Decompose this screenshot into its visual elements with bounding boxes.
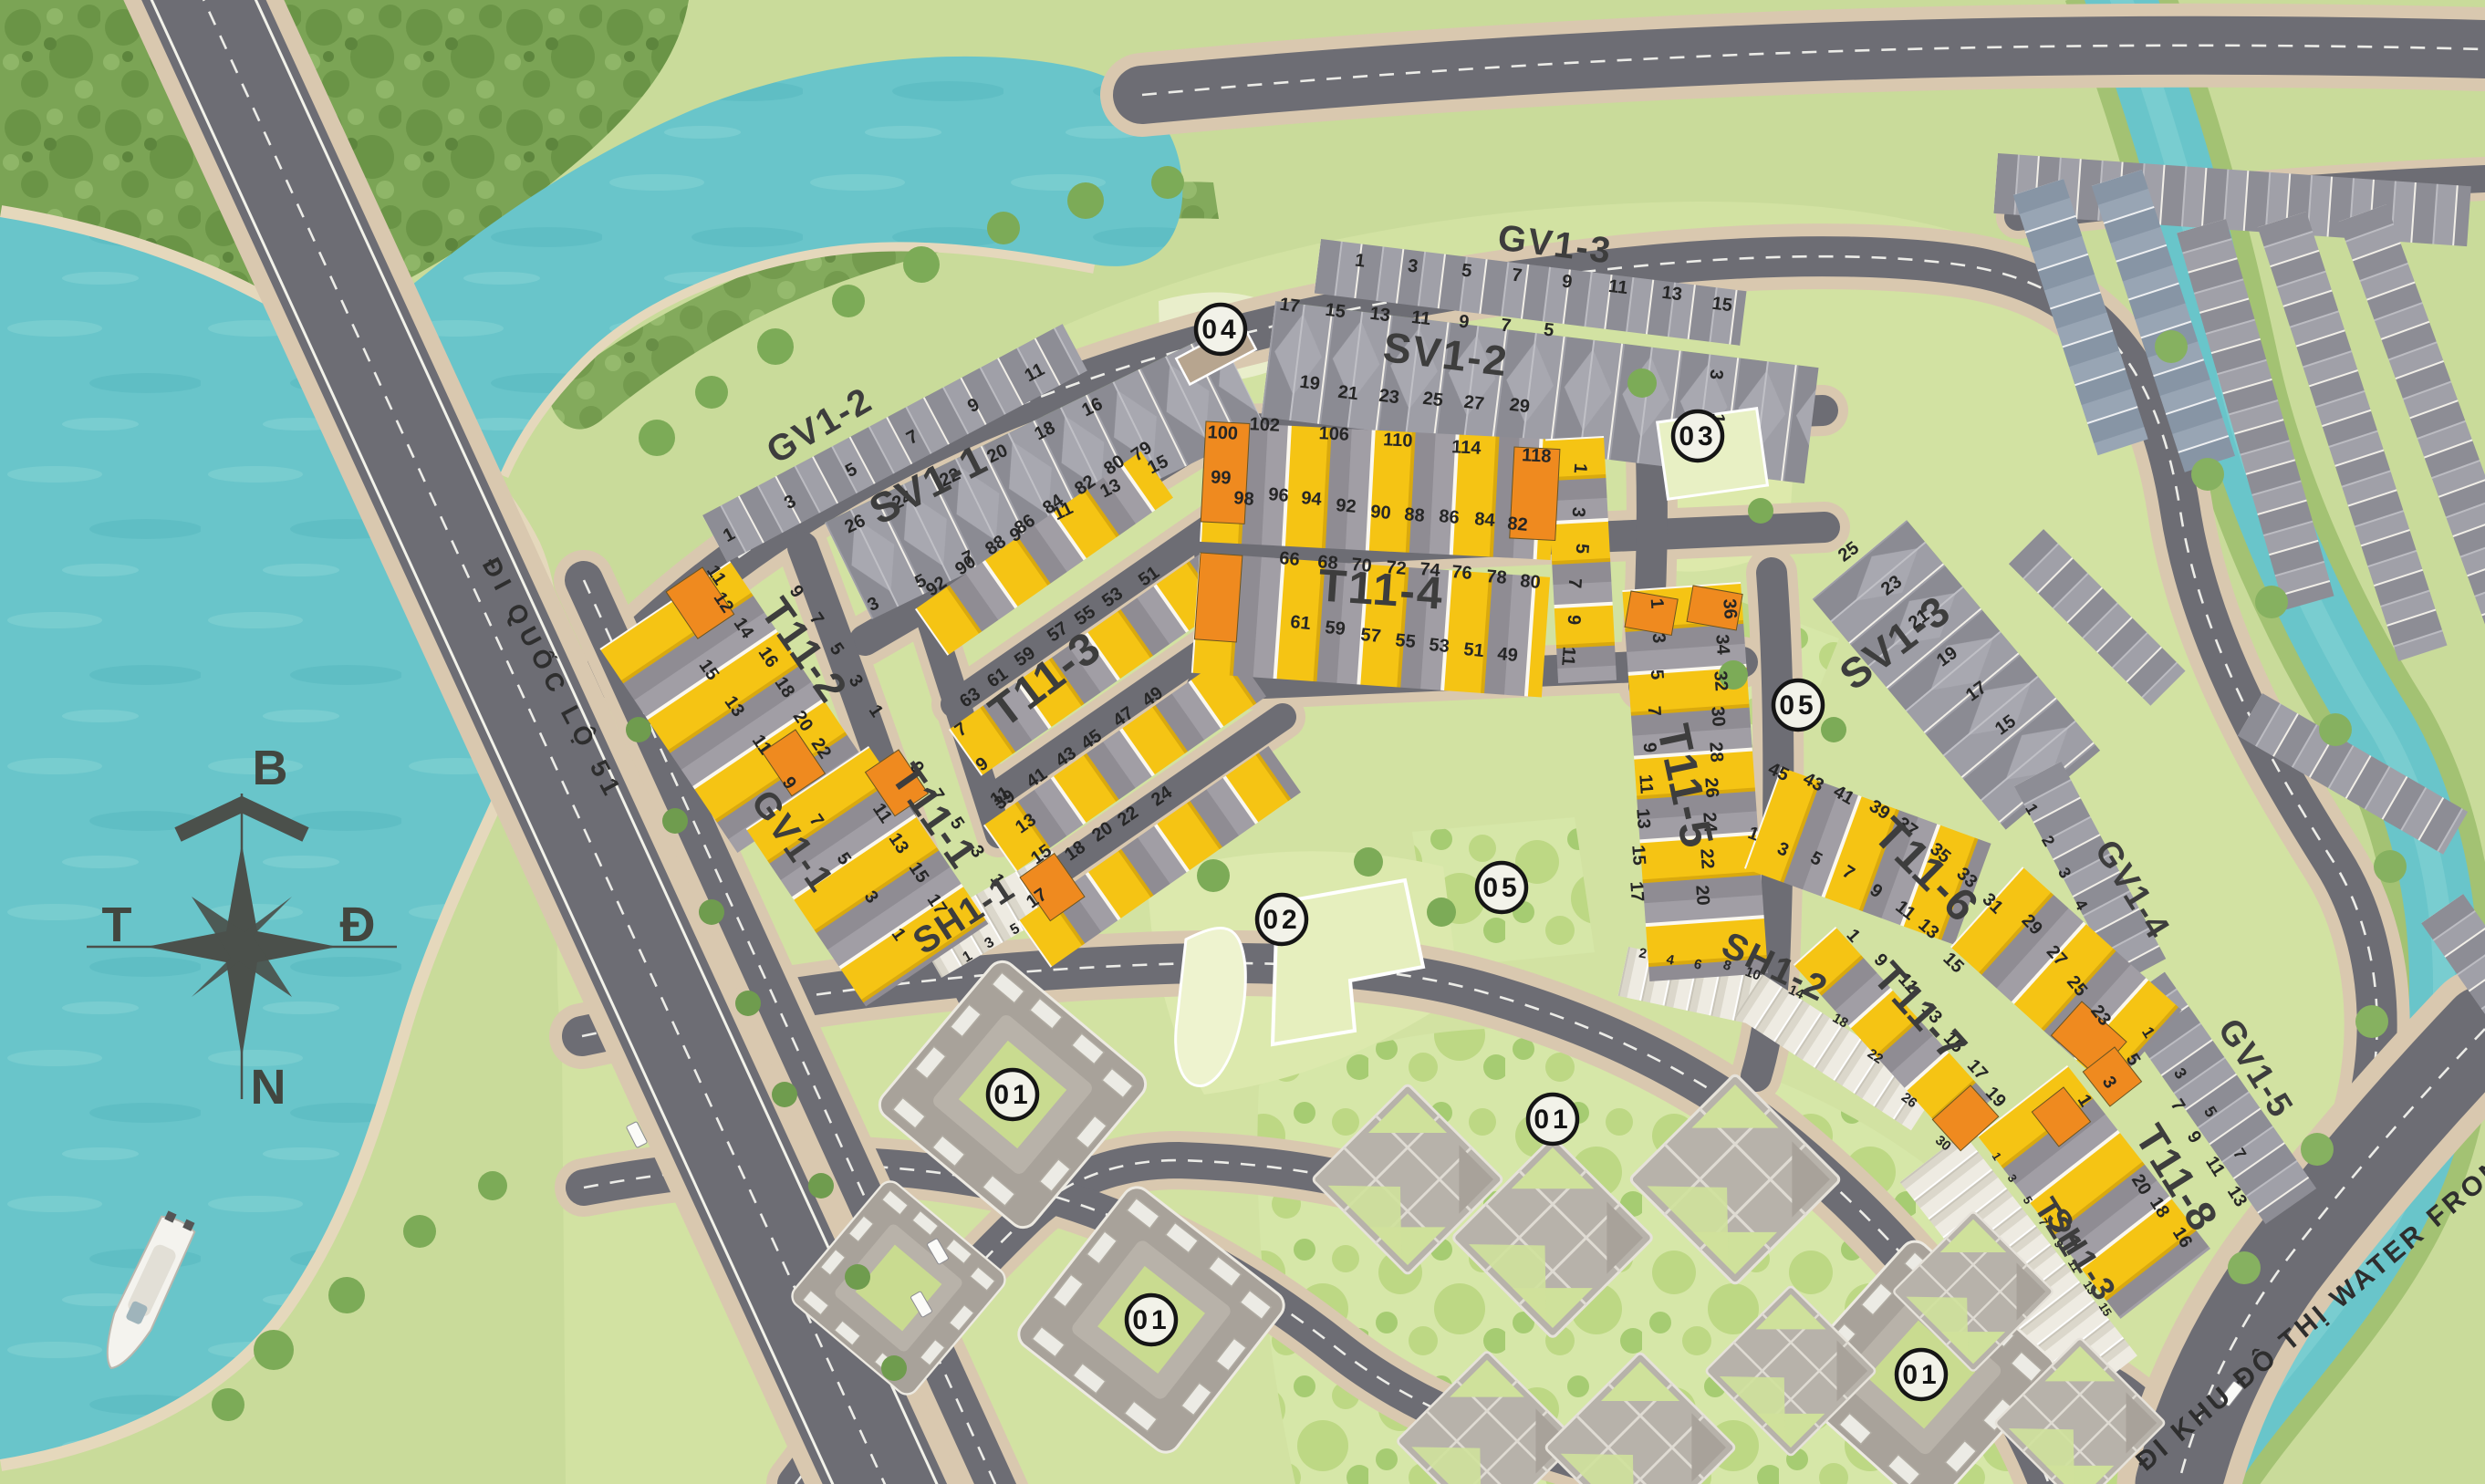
lot-number: 98 [1232,488,1254,510]
lot-number: 57 [1359,625,1381,647]
lot-number: 53 [1428,635,1450,657]
lot-number: 34 [1711,634,1733,657]
lot-number: 49 [1496,644,1518,666]
lot-number: 84 [1473,509,1496,531]
lot-number: 3 [1568,506,1589,518]
lot-number: 82 [1506,514,1528,535]
lot-number: 17 [1626,881,1647,903]
lot-number: 7 [1644,705,1665,717]
lot-number: 59 [1324,617,1346,639]
lot-number: 28 [1705,742,1726,763]
lot-number: 20 [1691,885,1712,907]
lot-number: 3 [1648,632,1669,644]
zone-marker-01[interactable]: 01 [988,1070,1037,1119]
lot-number: 80 [1519,571,1541,593]
lot-number: 15 [1710,294,1733,317]
lot-number: 22 [1696,848,1717,870]
compass-west-label: T [102,898,132,952]
zone-marker-03[interactable]: 03 [1673,411,1722,461]
lot-number: 11 [1607,276,1629,298]
marker-number: 05 [1482,873,1520,903]
lot-number: 76 [1450,562,1472,584]
lot-number: 27 [1462,392,1485,415]
marker-number: 04 [1201,315,1239,345]
lot-number: 11 [1635,773,1656,794]
lot-number: 90 [1369,502,1391,524]
lot-number: 13 [1632,808,1653,830]
compass-north-label: B [253,741,288,795]
compass-south-label: N [251,1060,286,1115]
marker-number: 03 [1679,421,1716,451]
lot-number: 1 [1647,597,1668,609]
lot-number: 21 [1336,382,1359,405]
lot-number: 29 [1508,395,1531,418]
lot-number: 25 [1421,389,1444,411]
lot-number: 118 [1522,445,1552,467]
lot-number: 92 [1335,495,1357,517]
lot-number: 86 [1438,506,1460,528]
lot-number: 5 [1647,669,1668,680]
lot-number: 99 [1211,467,1232,488]
zone-label-t11-4: T11-4 [1316,559,1445,618]
lot-number: 78 [1485,566,1507,588]
lot-number: 17 [1278,295,1301,317]
masterplan-map: B T Đ N ĐI QUỐC LỘ 51 ĐI KHU ĐÔ THỊ WATE… [0,0,2485,1484]
lot-number: 94 [1300,488,1323,510]
lot-number: 3 [1706,368,1727,380]
lot-number: 32 [1710,670,1731,692]
marker-number: 05 [1779,690,1816,721]
zone-marker-02[interactable]: 02 [1257,895,1306,944]
lot-number: 106 [1318,423,1349,445]
zone-marker-05[interactable]: 05 [1477,863,1526,912]
marker-number: 01 [1132,1305,1170,1335]
marker-number: 01 [1902,1360,1939,1390]
masterplan-page: B T Đ N ĐI QUỐC LỘ 51 ĐI KHU ĐÔ THỊ WATE… [0,0,2485,1484]
zone-marker-01[interactable]: 01 [1528,1095,1577,1144]
marker-number: 01 [993,1080,1031,1110]
lot-number: 102 [1249,414,1280,436]
lot-number: 15 [1627,845,1648,867]
lot-number: 1 [1570,462,1591,474]
marker-number: 02 [1263,905,1300,935]
zone-marker-01[interactable]: 01 [1127,1295,1176,1344]
zone-marker-05[interactable]: 05 [1773,680,1823,730]
zone-marker-04[interactable]: 04 [1196,305,1245,354]
lot-number: 66 [1278,548,1300,570]
lot-number: 36 [1719,598,1740,620]
lot-number: 19 [1298,372,1321,395]
lot-number: 5 [1572,543,1593,555]
lot-number: 110 [1383,430,1413,451]
zone-marker-01[interactable]: 01 [1897,1350,1946,1399]
lot-number: 51 [1462,639,1484,661]
compass-east-label: Đ [340,898,376,952]
lot-number: 11 [1557,646,1578,667]
lot-number: 30 [1707,706,1728,728]
lot-number: 96 [1267,484,1289,506]
lot-number: 100 [1207,422,1238,444]
lot-number: 15 [1324,300,1346,323]
lot-number: 9 [1564,614,1585,626]
lot-number: 61 [1289,612,1311,634]
lot-number: 7 [1565,577,1586,589]
lot-number: 55 [1394,630,1416,652]
lot-number: 114 [1451,437,1482,459]
lot-number: 23 [1378,386,1400,409]
marker-number: 01 [1534,1105,1571,1135]
lot-number: 13 [1660,283,1683,306]
lot-number: 88 [1403,504,1425,526]
